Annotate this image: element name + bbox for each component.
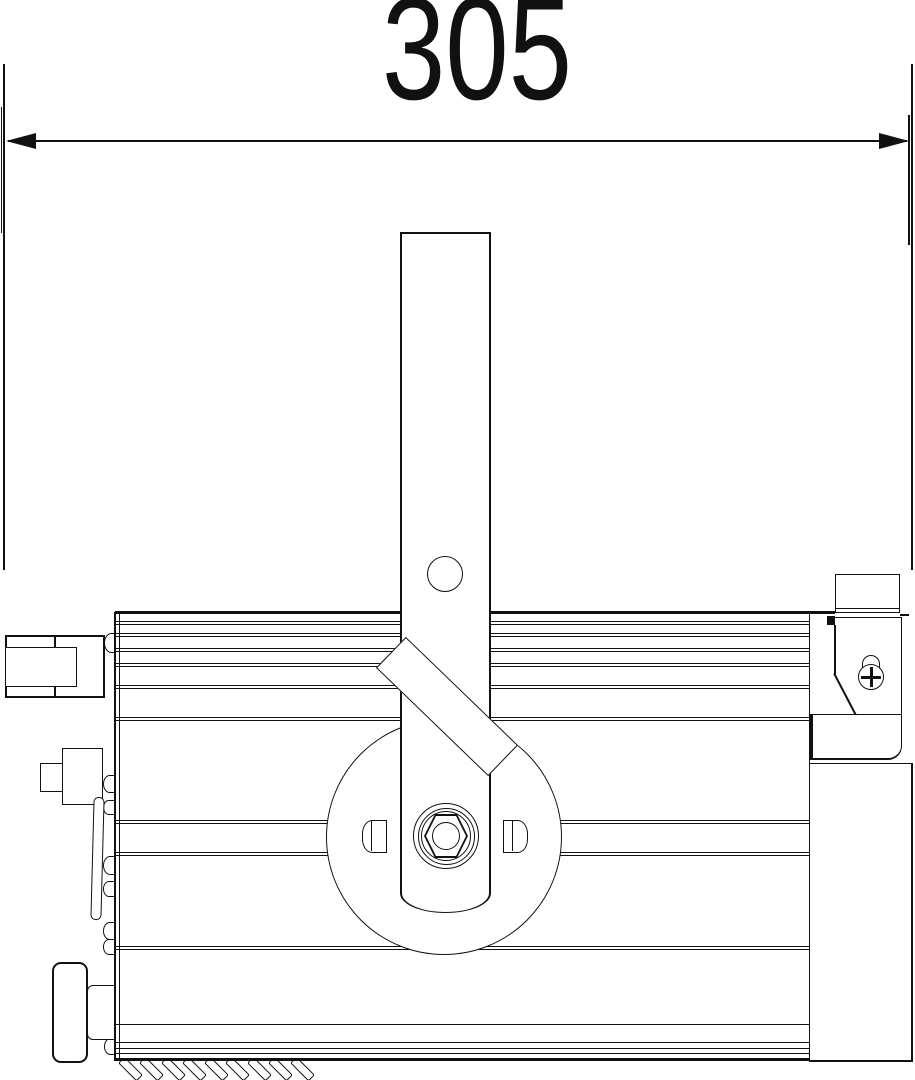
- yoke-arm-hole: [427, 556, 463, 592]
- bracket-top-line: [827, 617, 902, 619]
- extension-line-left-inner: [1, 107, 3, 233]
- dimension-line: [8, 140, 907, 142]
- body-left-edge-inner: [119, 614, 120, 1058]
- extension-line-left: [3, 64, 5, 570]
- bracket-left-edge: [834, 625, 836, 674]
- adjustment-knob: [52, 962, 88, 1063]
- body-left-edge: [114, 612, 116, 1061]
- body-bottom-edge: [115, 1058, 809, 1062]
- extrusion-ridge: [115, 1042, 809, 1049]
- connector-divider: [54, 686, 56, 698]
- extrusion-ridge: [115, 1024, 809, 1025]
- extrusion-ridge: [115, 1053, 809, 1054]
- bracket-lower-block: [810, 714, 902, 760]
- bracket-diagonal-edge: [834, 673, 858, 716]
- rear-panel: [809, 763, 913, 1062]
- bracket-short-line: [900, 614, 909, 616]
- bracket-tab-line: [836, 608, 899, 609]
- extension-line-right: [911, 64, 913, 570]
- arrowhead-left-icon: [6, 133, 36, 149]
- terminal-plate: [90, 797, 104, 920]
- clamp-block-right: [503, 820, 528, 853]
- connector-divider: [54, 636, 56, 648]
- clamp-divider: [371, 821, 372, 851]
- hub-bore: [432, 822, 460, 850]
- clamp-block-left: [362, 820, 387, 853]
- dimension-label: 305: [382, 0, 572, 122]
- clamp-divider: [512, 821, 513, 851]
- dmx-plug-tab: [40, 763, 63, 792]
- power-connector-socket: [5, 647, 77, 687]
- technical-drawing-canvas: 305: [0, 0, 915, 1080]
- bracket-notch: [827, 616, 835, 625]
- arrowhead-right-icon: [879, 133, 909, 149]
- knob-stem: [87, 985, 115, 1040]
- screw-cross-icon: [870, 667, 874, 687]
